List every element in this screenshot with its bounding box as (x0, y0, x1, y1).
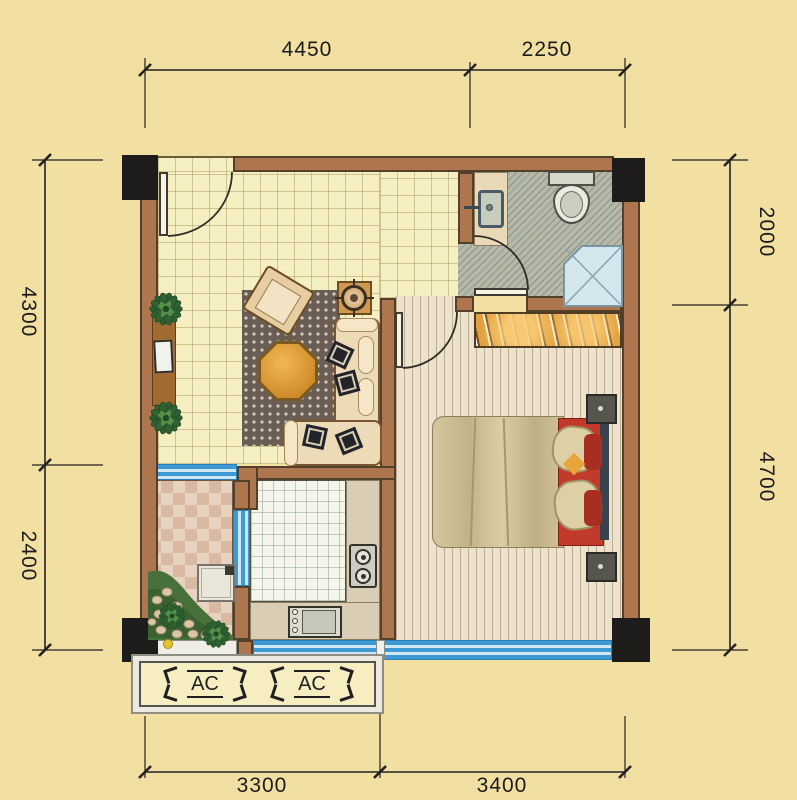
ac-corner-mark (270, 666, 288, 684)
dim-label-left-1: 4300 (14, 252, 40, 372)
kitchen-sink-basin (302, 610, 336, 634)
kitchen-floor (250, 480, 346, 602)
sofa-chaise (284, 420, 382, 466)
wall-left (140, 198, 158, 620)
ac-unit: AC (165, 668, 245, 700)
sofa-back-cushion (358, 336, 374, 374)
bathroom-door-leaf (474, 288, 528, 296)
stove-burner-dot (361, 574, 366, 579)
stove-burner-dot (361, 555, 366, 560)
sofa-chaise-armrest (284, 420, 298, 466)
bed-red-pillow (584, 490, 602, 526)
column-top-right (612, 158, 645, 202)
dim-label-right-1: 2000 (752, 172, 778, 292)
faucet (464, 206, 480, 209)
ac-label: AC (294, 670, 330, 698)
balcony-floor (148, 480, 233, 640)
wall-bathroom-bottom (526, 296, 622, 312)
column-top-left (122, 155, 158, 200)
ac-corner-mark (336, 666, 354, 684)
balcony-sliding-door (148, 464, 237, 480)
dim-label-top-1: 4450 (247, 38, 367, 64)
dim-label-left-2: 2400 (14, 496, 40, 616)
coffee-table (261, 344, 315, 398)
faucet-knob (486, 204, 493, 211)
wall-kitchen-top (237, 466, 396, 480)
ac-corner-mark (229, 684, 247, 702)
hallway-floor (380, 172, 458, 298)
wall-bedroom-door-stub (455, 296, 474, 312)
dim-label-top-2: 2250 (487, 38, 607, 64)
wall-top (233, 156, 614, 172)
ac-corner-mark (229, 666, 247, 684)
tv (153, 340, 174, 374)
ac-corner-mark (163, 666, 181, 684)
dim-label-right-2: 4700 (752, 417, 778, 537)
nightstand-knob (598, 564, 603, 569)
entrance-threshold (158, 156, 234, 172)
ac-unit: AC (272, 668, 352, 700)
throw-pillow (302, 424, 328, 450)
ac-corner-mark (163, 684, 181, 702)
wall-right (622, 200, 640, 620)
wall-balcony-divider-upper (233, 480, 250, 510)
floor-plan-canvas: AC AC (0, 0, 797, 800)
sink-dial (292, 618, 298, 624)
bedroom-door-leaf (395, 312, 403, 368)
ac-corner-mark (270, 684, 288, 702)
sink-dial (292, 609, 298, 615)
sink-dial (292, 627, 298, 633)
bed-duvet (432, 416, 564, 548)
bathroom-door-floor (458, 244, 474, 296)
wall-balcony-divider-lower (233, 586, 250, 640)
wardrobe (474, 312, 622, 348)
bedroom-door-floor (396, 296, 456, 312)
sofa-back-cushion (358, 378, 374, 416)
balcony-kitchen-window (233, 510, 250, 586)
washing-machine-panel (225, 566, 234, 575)
ac-corner-mark (336, 684, 354, 702)
sofa-armrest (336, 318, 378, 332)
table-lamp-center (350, 294, 358, 302)
dim-label-bottom-2: 3400 (442, 774, 562, 800)
ac-label: AC (187, 670, 223, 698)
column-bottom-right (612, 618, 650, 662)
bed-red-pillow (584, 434, 602, 470)
nightstand-knob (598, 406, 603, 411)
dim-label-bottom-1: 3300 (202, 774, 322, 800)
toilet-bowl-inner (560, 191, 583, 218)
entrance-door-leaf (159, 172, 168, 236)
